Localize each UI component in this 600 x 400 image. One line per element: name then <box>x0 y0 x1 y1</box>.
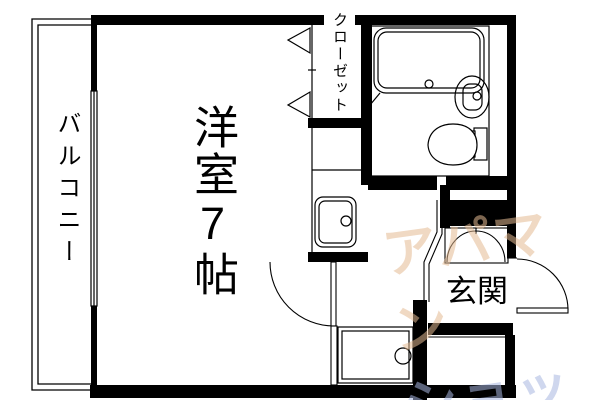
wall-bathroom-bottom-left <box>368 176 437 190</box>
floorplan: アパマン ショップ バルコニー 洋室7帖 クローゼット 玄関 <box>0 0 600 400</box>
wall-left-lower <box>91 306 97 391</box>
entrance-label: 玄関 <box>446 266 508 311</box>
wall-porch-left <box>413 300 427 400</box>
closet <box>288 25 316 118</box>
wall-left-upper <box>91 17 97 91</box>
kitchen-faucet <box>341 216 351 226</box>
wall-top <box>91 15 516 25</box>
entrance-door <box>507 258 568 313</box>
kitchen-sink <box>315 197 356 247</box>
wall-bathroom-bottom-right <box>446 176 516 190</box>
washing-machine-pan <box>338 327 413 383</box>
bathroom <box>370 26 489 176</box>
room-door-panel <box>331 262 336 326</box>
room-door <box>270 262 337 385</box>
bathtub <box>370 28 484 105</box>
shoe-cabinet-door-left <box>447 231 476 262</box>
toilet-bowl <box>428 124 477 165</box>
closet-folding-door-lower <box>288 92 310 117</box>
washbasin <box>455 76 489 118</box>
entrance-door-swing-arc <box>517 259 568 310</box>
wall-pipe-space <box>442 200 508 226</box>
entrance-door-panel <box>517 308 568 313</box>
room-door-swing-arc <box>270 262 334 326</box>
closet-label: クローゼット <box>324 11 355 115</box>
toilet <box>428 124 487 165</box>
balcony-label: バルコニー <box>49 111 84 271</box>
bathtub-drain <box>425 80 433 88</box>
wall-porch-right <box>505 335 515 393</box>
main-room-label: 洋室7帖 <box>180 104 245 298</box>
wall-porch-top <box>428 323 513 335</box>
wall-bottom <box>90 385 516 398</box>
floorplan-drawing <box>0 0 600 400</box>
closet-folding-door-upper <box>288 28 310 53</box>
shoe-cabinet <box>445 228 508 263</box>
window <box>91 91 97 306</box>
shoe-cabinet-door-right <box>476 231 505 262</box>
wall-kitchen-bottom <box>308 252 368 262</box>
wall-right-upper <box>507 15 516 258</box>
wall-closet-bottom <box>308 118 363 128</box>
walls <box>90 15 516 400</box>
kitchen <box>312 128 361 252</box>
washbasin-faucet <box>473 92 481 100</box>
hall-partition-wall <box>331 326 337 385</box>
